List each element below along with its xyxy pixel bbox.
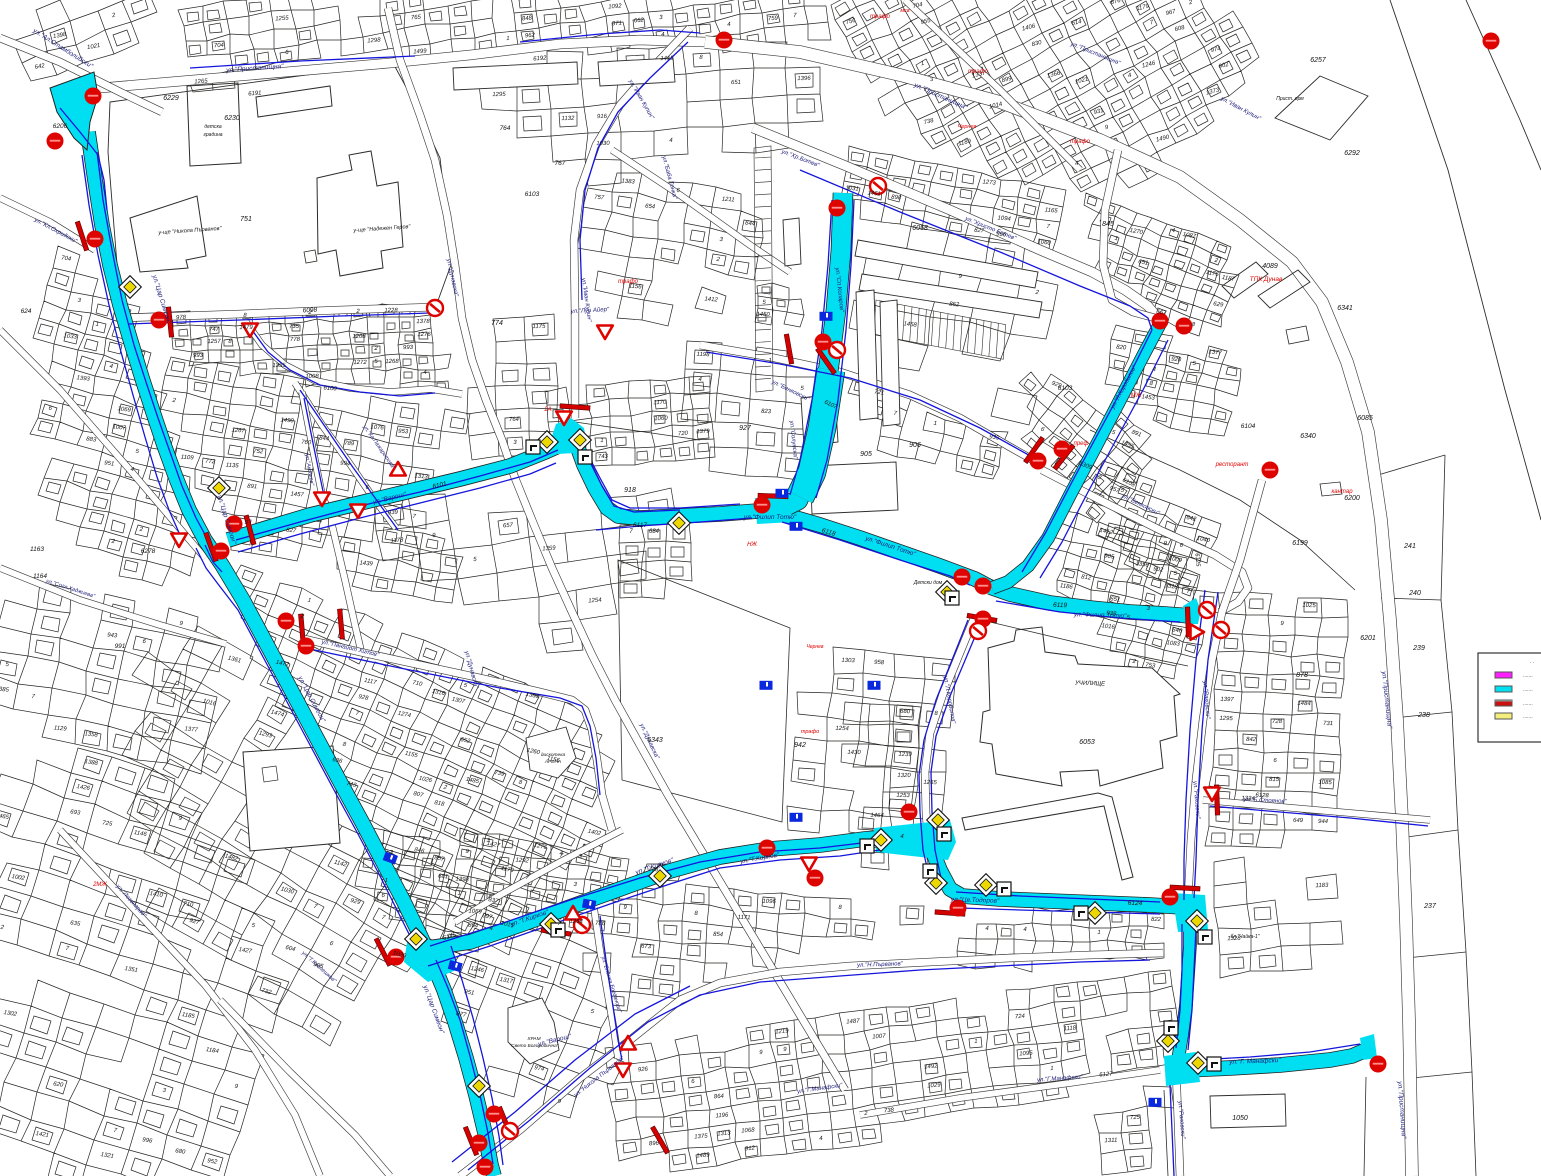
svg-text:827: 827	[286, 528, 297, 535]
svg-text:944: 944	[1318, 819, 1329, 825]
svg-text:1008: 1008	[305, 374, 319, 380]
svg-text:1095: 1095	[1019, 1050, 1033, 1057]
svg-text:6200: 6200	[1344, 495, 1360, 502]
svg-text:1276: 1276	[417, 332, 431, 338]
svg-text:1457: 1457	[290, 491, 304, 498]
svg-text:1069: 1069	[468, 908, 482, 915]
svg-text:1: 1	[768, 358, 772, 364]
svg-text:1396: 1396	[797, 76, 811, 82]
svg-text:1163: 1163	[30, 546, 44, 553]
svg-text:6343: 6343	[647, 737, 663, 744]
svg-text:747: 747	[209, 327, 220, 333]
svg-text:1: 1	[506, 36, 510, 42]
svg-text:1170: 1170	[653, 400, 667, 407]
svg-text:237: 237	[1423, 903, 1437, 910]
svg-text:918: 918	[624, 487, 636, 494]
svg-text:6100: 6100	[323, 385, 337, 392]
svg-text:1268: 1268	[385, 359, 399, 365]
svg-text:759: 759	[768, 16, 779, 23]
svg-text:1272: 1272	[353, 360, 367, 366]
svg-text:1313: 1313	[414, 473, 428, 480]
svg-text:мсв: мсв	[900, 8, 909, 14]
svg-text:1264: 1264	[569, 919, 583, 926]
svg-text:662: 662	[634, 18, 645, 25]
svg-text:878: 878	[1296, 672, 1308, 679]
svg-text:1359: 1359	[542, 545, 556, 552]
svg-text:991: 991	[115, 643, 126, 650]
svg-text:1385: 1385	[0, 686, 10, 693]
svg-text:1383: 1383	[621, 178, 635, 185]
svg-text:ХРАМ: ХРАМ	[526, 1036, 540, 1042]
svg-text:кантар: кантар	[1331, 489, 1353, 495]
svg-text:916: 916	[597, 114, 608, 120]
svg-text:760: 760	[301, 440, 312, 447]
svg-text:757: 757	[594, 195, 605, 202]
svg-text:1379: 1379	[696, 429, 710, 436]
svg-text:822: 822	[1151, 917, 1162, 923]
svg-text:6199: 6199	[1292, 540, 1308, 547]
svg-text:1: 1	[1050, 1066, 1054, 1072]
svg-text:ТПК Дунав: ТПК Дунав	[1250, 276, 1283, 283]
svg-text:891: 891	[247, 484, 258, 491]
svg-text:.......: .......	[1523, 714, 1533, 720]
svg-text:6103: 6103	[525, 191, 540, 198]
svg-text:848: 848	[522, 16, 533, 23]
svg-text:1198: 1198	[696, 352, 710, 359]
svg-text:1029: 1029	[927, 1082, 941, 1089]
svg-text:953: 953	[398, 429, 409, 436]
svg-text:. .: . .	[1530, 659, 1534, 665]
svg-text:962: 962	[525, 33, 536, 40]
svg-text:2: 2	[355, 309, 360, 315]
svg-text:6292: 6292	[1344, 150, 1360, 157]
svg-text:789: 789	[344, 441, 355, 448]
svg-text:1479: 1479	[239, 325, 253, 331]
svg-text:1007: 1007	[872, 1033, 886, 1040]
svg-text:1257: 1257	[207, 339, 221, 345]
svg-text:Чернев: Чернев	[958, 124, 977, 130]
svg-text:827: 827	[974, 228, 985, 235]
svg-text:6125: 6125	[1193, 553, 1200, 567]
svg-text:Чернев: Чернев	[806, 644, 823, 650]
svg-text:649: 649	[1293, 818, 1304, 824]
svg-text:624: 624	[21, 308, 32, 315]
svg-text:2МЖ: 2МЖ	[92, 882, 107, 888]
svg-text:6192: 6192	[533, 55, 547, 62]
svg-text:1118: 1118	[1064, 1026, 1078, 1033]
svg-text:765: 765	[411, 15, 422, 22]
svg-text:240: 240	[1408, 590, 1421, 597]
svg-text:1311: 1311	[1104, 1138, 1117, 1145]
svg-text:241: 241	[1403, 543, 1416, 550]
svg-text:1492: 1492	[924, 1063, 938, 1070]
svg-text:трафо: трафо	[801, 729, 819, 735]
svg-text:854: 854	[713, 932, 724, 938]
svg-text:1211: 1211	[721, 196, 734, 203]
svg-text:1: 1	[974, 1039, 978, 1045]
svg-text:738: 738	[884, 1108, 895, 1115]
svg-text:1254: 1254	[588, 597, 602, 604]
svg-text:2А: 2А	[543, 407, 551, 413]
svg-text:864: 864	[714, 1094, 725, 1101]
svg-text:ул."Филип Тотю": ул."Филип Тотю"	[743, 514, 797, 521]
svg-text:6257: 6257	[1310, 57, 1327, 64]
svg-text:6085: 6085	[1357, 415, 1373, 422]
svg-text:6201: 6201	[1360, 635, 1376, 642]
svg-text:1: 1	[1097, 930, 1100, 936]
svg-text:1450: 1450	[756, 312, 770, 319]
svg-text:1178: 1178	[390, 538, 404, 545]
svg-text:778: 778	[290, 337, 301, 343]
svg-text:823: 823	[761, 409, 772, 415]
svg-text:6058: 6058	[912, 225, 928, 232]
svg-text:845: 845	[1102, 221, 1114, 228]
svg-text:1265: 1265	[194, 78, 208, 85]
svg-text:1489: 1489	[696, 1152, 710, 1159]
svg-text:6229: 6229	[163, 95, 179, 102]
svg-text:1292: 1292	[515, 857, 529, 864]
svg-text:2: 2	[307, 310, 312, 316]
svg-text:958: 958	[874, 660, 885, 666]
svg-text:1464: 1464	[870, 813, 884, 819]
svg-text:1397: 1397	[1220, 697, 1234, 703]
svg-text:815: 815	[1269, 777, 1280, 783]
svg-text:238: 238	[1417, 712, 1430, 719]
svg-text:743: 743	[598, 454, 609, 460]
svg-text:993: 993	[193, 353, 204, 359]
svg-text:898: 898	[891, 195, 902, 202]
svg-text:786: 786	[595, 921, 606, 927]
svg-text:764: 764	[500, 125, 511, 132]
svg-text:1025: 1025	[1302, 603, 1316, 609]
svg-text:1484: 1484	[1297, 701, 1311, 707]
svg-text:1415: 1415	[660, 56, 674, 62]
svg-text:Детски дом: Детски дом	[913, 580, 943, 586]
svg-text:654: 654	[645, 204, 656, 211]
svg-text:1490: 1490	[280, 417, 294, 424]
svg-text:1355: 1355	[272, 363, 286, 369]
svg-text:1175: 1175	[532, 324, 546, 330]
svg-text:994: 994	[340, 461, 351, 468]
svg-text:684: 684	[649, 529, 660, 535]
svg-text:767: 767	[555, 160, 566, 167]
svg-text:1068: 1068	[741, 1127, 755, 1134]
svg-text:1050: 1050	[1232, 1115, 1248, 1122]
svg-text:1219: 1219	[775, 1028, 789, 1035]
svg-text:852: 852	[949, 301, 960, 308]
svg-text:842: 842	[1246, 737, 1257, 743]
svg-text:1196: 1196	[715, 1113, 729, 1120]
svg-text:993: 993	[403, 345, 414, 351]
svg-text:725: 725	[1130, 1115, 1141, 1121]
svg-text:1461: 1461	[867, 190, 881, 197]
svg-text:905: 905	[860, 451, 872, 458]
svg-text:778: 778	[648, 867, 659, 874]
svg-text:239: 239	[1412, 645, 1425, 652]
svg-text:1171: 1171	[737, 915, 750, 922]
svg-text:детска: детска	[204, 124, 221, 130]
svg-text:1430: 1430	[847, 750, 861, 756]
svg-text:896: 896	[649, 1141, 660, 1148]
svg-text:1378: 1378	[416, 319, 430, 325]
svg-text:6127: 6127	[1099, 1071, 1113, 1078]
svg-text:871: 871	[612, 21, 622, 28]
svg-text:764: 764	[509, 417, 520, 423]
svg-text:УЧИЛИЩЕ: УЧИЛИЩЕ	[1074, 680, 1106, 687]
svg-text:820: 820	[1116, 344, 1127, 351]
svg-text:752: 752	[253, 449, 264, 456]
svg-text:1398: 1398	[455, 876, 469, 883]
svg-text:844: 844	[319, 436, 330, 443]
svg-text:939: 939	[388, 510, 399, 517]
svg-text:751: 751	[240, 216, 252, 223]
svg-text:644: 644	[745, 221, 756, 228]
svg-text:772: 772	[205, 459, 216, 466]
svg-text:1156: 1156	[628, 283, 642, 290]
svg-text:906: 906	[909, 442, 921, 449]
svg-text:942: 942	[794, 742, 806, 749]
svg-text:1076: 1076	[370, 424, 384, 431]
svg-text:912: 912	[745, 1146, 756, 1153]
svg-text:.......: .......	[1523, 701, 1533, 707]
svg-text:1313: 1313	[717, 1130, 731, 1137]
svg-text:926: 926	[638, 1067, 649, 1074]
svg-text:721: 721	[874, 389, 885, 396]
svg-text:927: 927	[739, 425, 752, 432]
svg-text:Прист. орм: Прист. орм	[1276, 96, 1304, 102]
svg-text:1412: 1412	[704, 296, 718, 303]
svg-text:1328: 1328	[1227, 936, 1241, 943]
svg-text:трафо: трафо	[1070, 139, 1091, 145]
svg-text:1487: 1487	[846, 1018, 860, 1025]
svg-text:1298: 1298	[367, 37, 381, 44]
svg-text:4089: 4089	[1262, 263, 1278, 270]
svg-text:.......: .......	[1523, 687, 1533, 693]
svg-text:1183: 1183	[1315, 883, 1329, 890]
svg-text:657: 657	[503, 523, 514, 530]
svg-text:НЖ: НЖ	[747, 542, 757, 548]
svg-text:720: 720	[678, 431, 689, 437]
svg-text:6278: 6278	[141, 548, 156, 555]
svg-text:6341: 6341	[1337, 305, 1353, 312]
svg-text:трафо: трафо	[870, 14, 891, 20]
svg-text:"Свето Богородична": "Свето Богородична"	[509, 1043, 558, 1049]
svg-text:6206: 6206	[53, 123, 68, 130]
svg-text:731: 731	[1323, 721, 1333, 727]
svg-text:1267: 1267	[231, 427, 245, 434]
svg-text:1164: 1164	[33, 573, 47, 580]
svg-text:680: 680	[900, 709, 911, 715]
svg-text:преф: преф	[1074, 441, 1089, 447]
svg-text:735: 735	[289, 324, 300, 330]
svg-text:МЖ: МЖ	[1131, 393, 1142, 399]
svg-text:2: 2	[373, 346, 378, 352]
svg-text:1439: 1439	[359, 560, 373, 567]
svg-text:920: 920	[1171, 356, 1182, 363]
svg-text:1295: 1295	[1219, 716, 1233, 722]
svg-text:1253: 1253	[896, 793, 910, 799]
svg-text:978: 978	[176, 315, 187, 321]
svg-text:.......: .......	[1523, 673, 1533, 679]
svg-text:1031: 1031	[845, 185, 859, 192]
svg-text:1320: 1320	[897, 773, 911, 779]
svg-text:1239: 1239	[898, 752, 912, 758]
svg-text:1: 1	[457, 891, 461, 897]
svg-text:1132: 1132	[561, 116, 575, 122]
svg-text:724: 724	[1015, 1014, 1026, 1021]
svg-text:6117: 6117	[633, 522, 647, 529]
svg-text:1092: 1092	[608, 3, 622, 10]
svg-text:6119: 6119	[1053, 602, 1068, 609]
svg-text:673: 673	[641, 944, 652, 950]
svg-text:ресторант: ресторант	[1215, 462, 1249, 468]
svg-text:681: 681	[438, 874, 449, 881]
svg-text:774: 774	[491, 320, 503, 327]
svg-text:1334: 1334	[1241, 796, 1255, 802]
svg-text:1096: 1096	[762, 899, 776, 906]
svg-text:1208: 1208	[352, 334, 366, 340]
svg-text:1228: 1228	[384, 308, 398, 314]
svg-text:1: 1	[600, 438, 604, 444]
svg-text:956: 956	[996, 232, 1007, 239]
svg-text:1255: 1255	[275, 15, 289, 22]
svg-text:1135: 1135	[225, 462, 239, 469]
svg-text:6340: 6340	[1300, 433, 1316, 440]
svg-text:943: 943	[107, 632, 118, 639]
svg-text:1254: 1254	[835, 726, 849, 733]
svg-text:6104: 6104	[1241, 423, 1256, 430]
svg-text:1109: 1109	[180, 454, 194, 461]
svg-text:1060: 1060	[654, 416, 668, 423]
svg-text:1465: 1465	[0, 813, 10, 821]
svg-text:1085: 1085	[1318, 780, 1332, 786]
svg-text:6124: 6124	[1128, 900, 1143, 908]
svg-text:1375: 1375	[694, 1133, 708, 1140]
svg-text:1303: 1303	[841, 658, 855, 665]
svg-text:градина: градина	[203, 132, 222, 138]
svg-text:1: 1	[384, 878, 388, 884]
svg-text:704: 704	[214, 43, 225, 50]
svg-text:6053: 6053	[1079, 739, 1095, 746]
svg-text:651: 651	[731, 80, 741, 86]
svg-text:1030: 1030	[596, 141, 610, 147]
svg-text:1499: 1499	[413, 48, 427, 55]
svg-text:6191: 6191	[248, 90, 262, 97]
svg-text:6230: 6230	[224, 115, 240, 122]
svg-text:728: 728	[1272, 719, 1283, 725]
svg-text:1295: 1295	[492, 92, 506, 98]
svg-text:864: 864	[468, 923, 479, 930]
svg-text:1265: 1265	[923, 780, 937, 787]
svg-text:6128: 6128	[1255, 793, 1269, 800]
